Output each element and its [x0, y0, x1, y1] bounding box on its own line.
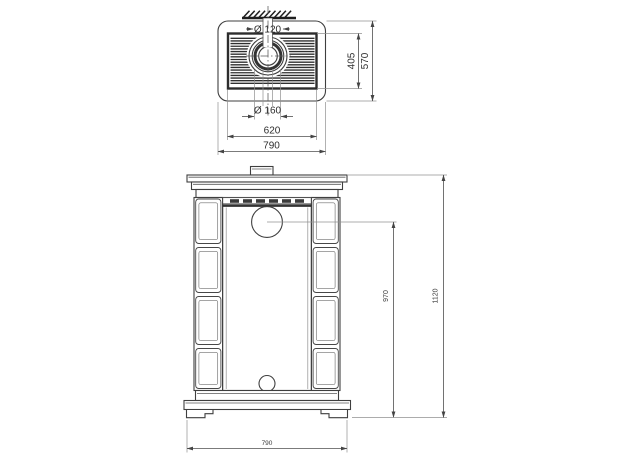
bottom-band [196, 391, 339, 401]
drawing-svg: Ø 120 Ø 160 620 790 [0, 0, 624, 460]
crown-molding [196, 190, 338, 198]
top-plate [187, 175, 347, 190]
dim-label-flue-height: 970 [383, 290, 390, 302]
dim-label-grille-depth: 405 [347, 52, 358, 69]
vent-slots [230, 199, 304, 203]
dim-label-overall-width: 790 [262, 440, 273, 447]
chimney-cover-knob [251, 167, 274, 176]
dim-label-grille-width: 620 [264, 126, 281, 137]
dim-label-flue-inner: Ø 120 [254, 25, 282, 36]
air-inlet-circle [259, 376, 275, 392]
dim-label-plate-depth: 570 [360, 52, 371, 69]
stove-technical-drawing: Ø 120 Ø 160 620 790 [0, 0, 624, 460]
dim-label-flue-collar: Ø 160 [254, 106, 282, 117]
dim-overall-width: 790 [187, 420, 347, 453]
front-view: 970 1120 790 [184, 167, 447, 453]
foot-left [187, 410, 214, 418]
foot-right [321, 410, 348, 418]
base-plinth [184, 401, 351, 410]
top-view: Ø 120 Ø 160 620 790 [218, 6, 377, 155]
dim-label-overall-height: 1120 [433, 288, 440, 303]
dim-overall-height: 1120 [348, 175, 447, 418]
wall-hatch [242, 11, 296, 18]
dim-label-plate-width: 790 [263, 141, 280, 152]
